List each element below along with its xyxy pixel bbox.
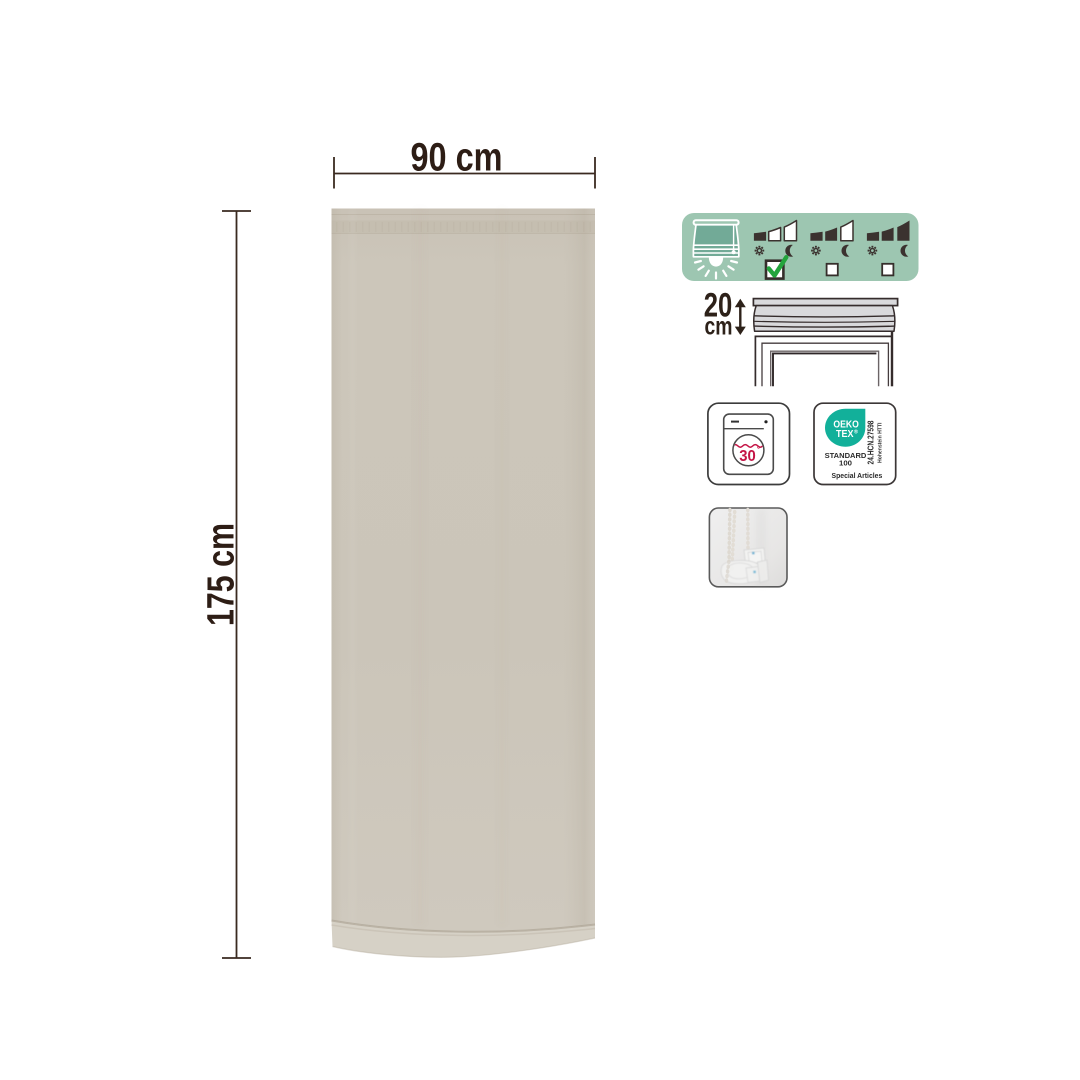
- svg-text:Hohenstein HTTI: Hohenstein HTTI: [878, 422, 884, 463]
- svg-text:®: ®: [854, 428, 858, 435]
- svg-text:TEX: TEX: [836, 429, 854, 440]
- svg-text:°: °: [757, 444, 761, 454]
- svg-text:30: 30: [739, 448, 756, 465]
- svg-text:24.HCN.27598: 24.HCN.27598: [866, 420, 876, 464]
- svg-text:STANDARD: STANDARD: [825, 453, 867, 460]
- svg-text:cm: cm: [705, 313, 733, 341]
- svg-text:Special Articles: Special Articles: [832, 471, 883, 480]
- svg-text:100: 100: [839, 461, 852, 468]
